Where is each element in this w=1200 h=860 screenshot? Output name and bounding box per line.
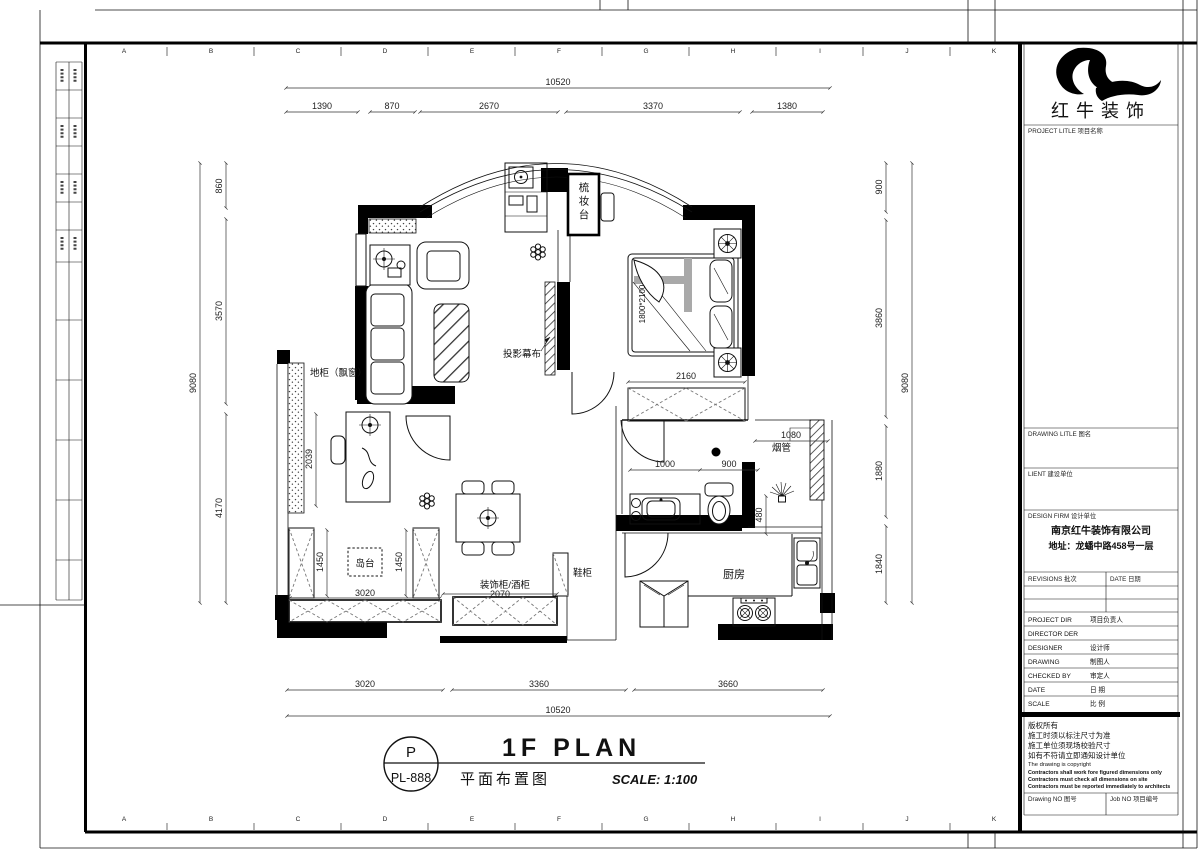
copyright-line: Contractors must check all dimensions on… — [1028, 777, 1148, 783]
dim: 1450 — [315, 552, 325, 572]
dim: 4170 — [214, 498, 224, 518]
sofa — [366, 284, 412, 404]
brand-name: 红牛装饰 — [1051, 101, 1151, 121]
kitchen: 厨房 — [640, 534, 820, 627]
row-label: 审定人 — [1090, 671, 1110, 680]
sheet-frame — [0, 0, 1197, 848]
dressing-table-label: 梳妆台 — [578, 181, 590, 222]
grid-letter: K — [992, 48, 997, 55]
grid-letter: A — [122, 816, 127, 823]
bathroom — [630, 448, 733, 525]
dressing-stool — [601, 193, 614, 221]
grid-letter: D — [383, 48, 388, 55]
project-title-label: PROJECT LITLE 项目名称 — [1028, 126, 1103, 135]
dim: 9080 — [900, 373, 910, 393]
grid-letter: F — [557, 48, 561, 55]
dim: 1080 — [781, 430, 801, 440]
grid-letter: J — [905, 48, 908, 55]
grid-letter: A — [122, 48, 127, 55]
copyright-block: 版权所有 施工时须以标注尺寸为准 施工单位须现场校验尺寸 如有不符请立即通知设计… — [1028, 720, 1170, 790]
dining-set — [456, 481, 520, 555]
dim: 1390 — [312, 101, 332, 111]
wardrobe — [628, 388, 745, 421]
grid-letter: K — [992, 816, 997, 823]
bed: 1800*2100 — [628, 254, 738, 356]
dim: 3020 — [355, 679, 375, 689]
copyright-line: 如有不符请立即通知设计单位 — [1028, 750, 1126, 760]
title-block: 红牛装饰 PROJECT LITLE 项目名称 DRAWING LITLE 图名… — [1020, 43, 1180, 832]
client-label: LIENT 建设单位 — [1028, 469, 1073, 478]
dim: 1840 — [874, 554, 884, 574]
row-label: PROJECT DIR — [1028, 617, 1072, 624]
grid-letter: B — [209, 48, 213, 55]
row-label: DRAWING — [1028, 659, 1060, 666]
bay-cabinet-label: 地柜（飘窗） — [310, 367, 367, 379]
grid-letter: J — [905, 816, 908, 823]
grid-letter: H — [731, 816, 736, 823]
drawing-title-label: DRAWING LITLE 图名 — [1028, 429, 1091, 438]
toilet-bowl — [708, 496, 730, 524]
dim: 10520 — [545, 705, 570, 715]
row-label: DIRECTOR DER — [1028, 631, 1078, 638]
toilet-tank — [705, 483, 733, 496]
dim: 480 — [754, 507, 764, 522]
dim: 9080 — [188, 373, 198, 393]
grid-letter: C — [296, 816, 301, 823]
shoe-cabinet-label: 鞋柜 — [573, 567, 593, 579]
dim: 3570 — [214, 301, 224, 321]
stove — [733, 598, 775, 626]
copyright-line: 施工单位须现场校验尺寸 — [1028, 740, 1111, 750]
plan-bubble-number: PL-888 — [391, 771, 431, 785]
row-label: DATE — [1028, 687, 1046, 694]
plan-bubble-letter: P — [406, 744, 416, 761]
plan-title-cn: 平面布置图 — [460, 771, 550, 788]
rug — [434, 304, 469, 382]
floor-plan-drawing: A B C D E F G H I J K A B C D E F G H I … — [0, 0, 1200, 860]
row-label: 比 例 — [1090, 699, 1105, 708]
projection-screen — [545, 282, 555, 375]
grid-letter: G — [643, 48, 648, 55]
flower-plant — [531, 244, 546, 260]
nightstand — [714, 348, 741, 377]
left-revision-strip — [56, 62, 82, 600]
grid-letter: G — [643, 816, 648, 823]
bed-size-label: 1800*2100 — [638, 284, 647, 323]
dim: 870 — [384, 101, 399, 111]
signoff-rows: PROJECT DIR 项目负责人 DIRECTOR DER DESIGNER … — [1024, 615, 1178, 708]
island-label: 岛台 — [355, 558, 374, 570]
desk — [331, 412, 390, 502]
dim: 1450 — [394, 552, 404, 572]
dim: 2160 — [676, 371, 696, 381]
drawing-sheet: A B C D E F G H I J K A B C D E F G H I … — [0, 0, 1200, 860]
dim: 1380 — [777, 101, 797, 111]
row-label: CHECKED BY — [1028, 673, 1071, 680]
row-label: 制图人 — [1090, 657, 1110, 666]
row-label: 设计师 — [1090, 643, 1110, 652]
grid-letter: I — [819, 48, 821, 55]
grid-letter: D — [383, 816, 388, 823]
revisions-date-label: DATE 日期 — [1110, 575, 1141, 583]
grid-letter: C — [296, 48, 301, 55]
dim: 3660 — [718, 679, 738, 689]
dim: 900 — [721, 459, 736, 469]
svg-text:投影幕布: 投影幕布 — [503, 348, 541, 360]
copyright-line: 施工时须以标注尺寸为准 — [1028, 730, 1111, 740]
dim: 3370 — [643, 101, 663, 111]
dim: 3360 — [529, 679, 549, 689]
dim: 2670 — [479, 101, 499, 111]
plan-scale: SCALE: 1:100 — [612, 772, 698, 787]
ceiling-dot — [712, 448, 721, 457]
projection-screen-label: 投影幕布 — [503, 337, 550, 360]
flower-plant — [420, 493, 435, 509]
job-no-label: Job NO 项目编号 — [1110, 794, 1158, 803]
design-firm-label: DESIGN FIRM 设计单位 — [1028, 511, 1097, 520]
design-firm-address: 地址：龙蟠中路458号一层 — [1048, 540, 1153, 551]
side-table — [370, 245, 410, 285]
dim: 860 — [214, 178, 224, 193]
deco-wine-cabinet: 装饰柜/酒柜 — [453, 579, 557, 625]
dim: 900 — [874, 179, 884, 194]
dim: 3020 — [355, 588, 375, 598]
grid-letter: E — [470, 48, 475, 55]
island-cabinets: 岛台 — [289, 528, 441, 622]
design-firm-name: 南京红牛装饰有限公司 — [1051, 524, 1151, 537]
dim: 1880 — [874, 461, 884, 481]
plan-title-en: 1F PLAN — [502, 734, 641, 762]
grid-letter: E — [470, 816, 475, 823]
nightstand — [714, 229, 741, 258]
armchair — [417, 242, 469, 289]
grid-letter: I — [819, 816, 821, 823]
dim: 3860 — [874, 308, 884, 328]
brand-logo — [1056, 48, 1161, 101]
copyright-line: Contractors must be reported immediately… — [1028, 784, 1170, 790]
dim: 1000 — [655, 459, 675, 469]
dim: 2070 — [490, 589, 510, 599]
appliance-cabinet — [505, 163, 547, 232]
row-label: DESIGNER — [1028, 645, 1063, 652]
copyright-line: Contractors shall work fore figured dime… — [1028, 770, 1162, 776]
kitchen-label: 厨房 — [723, 568, 745, 581]
copyright-line: 版权所有 — [1028, 720, 1058, 730]
title-bar: P PL-888 1F PLAN 平面布置图 SCALE: 1:100 — [384, 734, 705, 791]
drawing-no-label: Drawing NO 图号 — [1028, 795, 1077, 803]
fridge — [640, 581, 688, 627]
row-label: 日 期 — [1090, 686, 1105, 694]
palm-plant — [770, 482, 794, 502]
shoe-cabinet: 鞋柜 — [553, 553, 593, 596]
desk-chair — [331, 436, 345, 464]
grid-letter: H — [731, 48, 736, 55]
svg-text:烟管: 烟管 — [772, 442, 791, 454]
grid-letter: F — [557, 816, 561, 823]
copyright-line: The drawing is copyright — [1028, 762, 1091, 768]
dim: 10520 — [545, 77, 570, 87]
row-label: 项目负责人 — [1090, 615, 1123, 624]
row-label: SCALE — [1028, 701, 1050, 708]
grid-letter: B — [209, 816, 213, 823]
dim: 2039 — [304, 449, 314, 469]
revisions-label: REVISIONS 批次 — [1028, 574, 1077, 583]
